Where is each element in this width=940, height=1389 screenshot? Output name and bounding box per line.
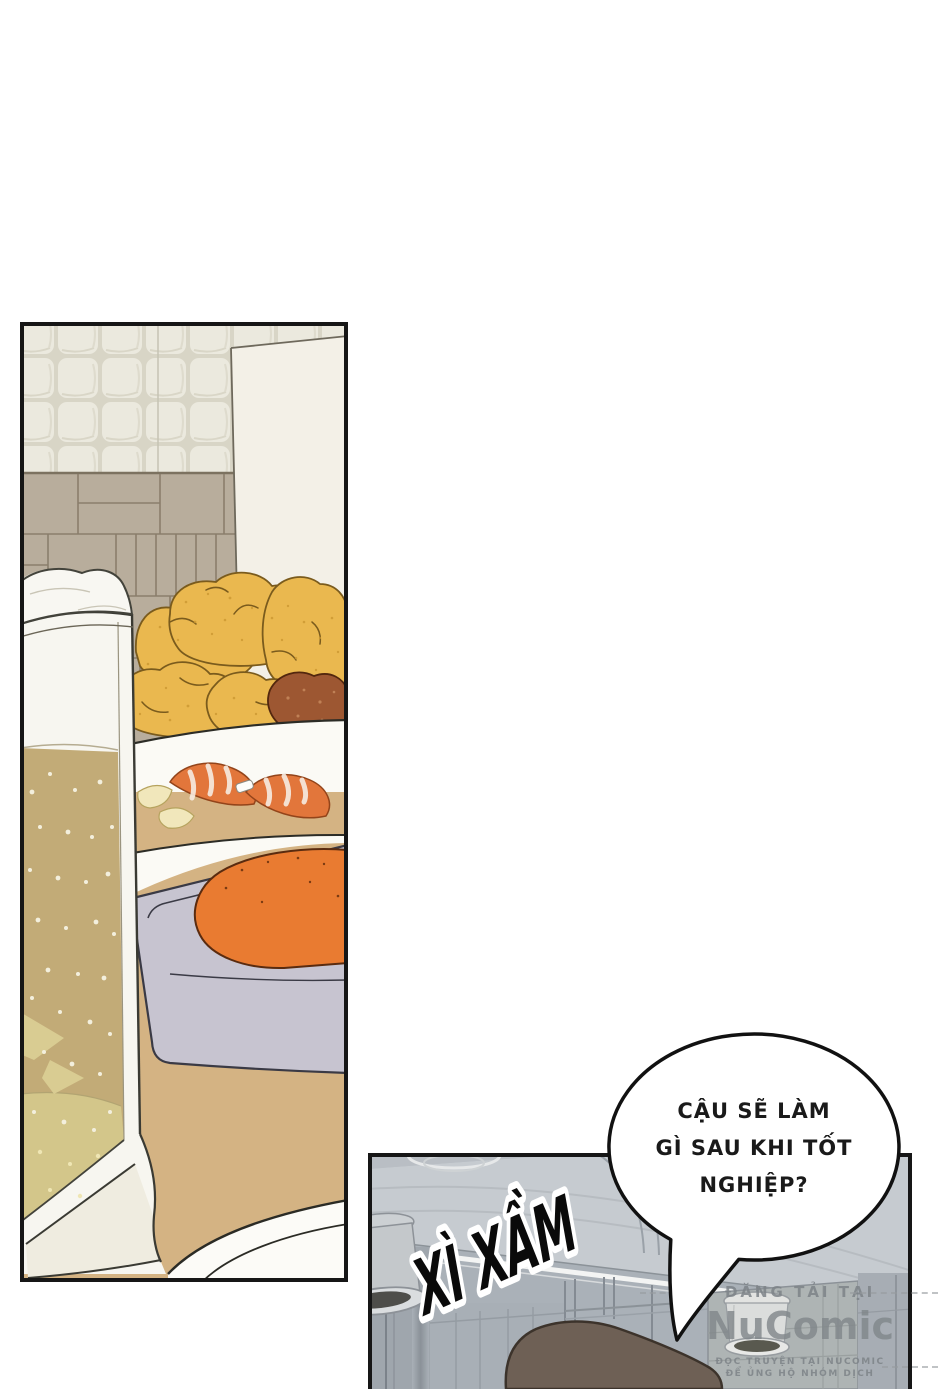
bubble-line: NGHIỆP?	[634, 1167, 874, 1204]
sfx-whisper: XÌ XẦM	[388, 1180, 618, 1345]
watermark-subline-2: ĐỂ ỦNG HỘ NHÓM DỊCH	[690, 1369, 910, 1379]
food-scene-art	[20, 322, 348, 1282]
panel-food-scene	[20, 322, 348, 1282]
comic-page: ĐĂNG TẢI TẠI NuComic ĐỌC TRUYỆN TẠI NUCO…	[0, 0, 940, 1389]
sfx-text: XÌ XẦM	[408, 1167, 582, 1336]
speech-bubble-text: CẬU SẼ LÀM GÌ SAU KHI TỐT NGHIỆP?	[634, 1093, 874, 1204]
bubble-line: CẬU SẼ LÀM	[634, 1093, 874, 1130]
bubble-line: GÌ SAU KHI TỐT	[634, 1130, 874, 1167]
watermark-dash-bottom-right	[882, 1366, 938, 1368]
watermark-subline-1: ĐỌC TRUYỆN TẠI NUCOMIC	[690, 1357, 910, 1367]
